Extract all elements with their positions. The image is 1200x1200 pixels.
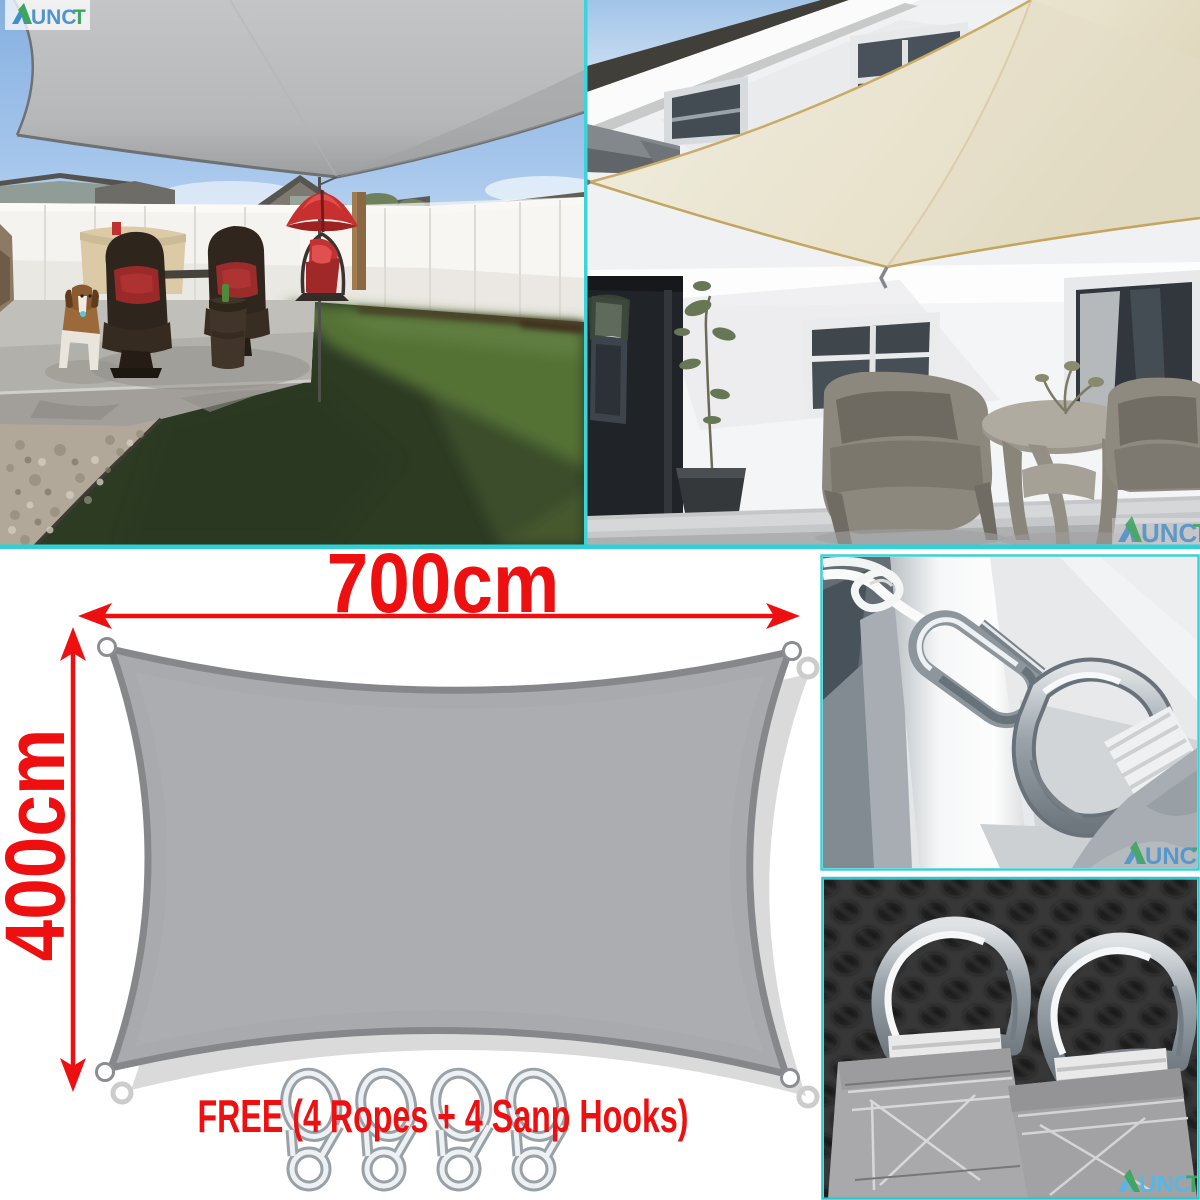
svg-text:T: T [73,6,86,29]
svg-text:UNC: UNC [1139,1171,1191,1198]
svg-text:UNC: UNC [1145,843,1197,870]
svg-text:T: T [1193,518,1200,548]
svg-text:700cm: 700cm [327,536,560,630]
svg-text:FREE (4 Ropes + 4 Sanp Hooks): FREE (4 Ropes + 4 Sanp Hooks) [198,1091,689,1142]
svg-text:UNC: UNC [1141,518,1198,548]
svg-text:400cm: 400cm [0,729,82,962]
svg-text:UNC: UNC [31,6,77,29]
